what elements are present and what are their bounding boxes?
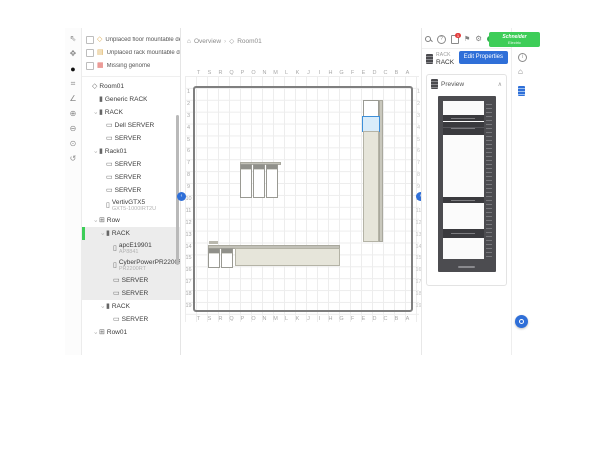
floor-rack[interactable] [221, 248, 233, 268]
filter-row[interactable]: ▦Missing genome [82, 59, 180, 72]
server-icon: ▭ [106, 135, 113, 142]
rack-icon: ▮ [99, 109, 103, 116]
chevron-down-icon[interactable]: › [99, 304, 105, 310]
server-icon: ▭ [113, 290, 120, 297]
tree-item-row[interactable]: ›⊞Row [82, 214, 180, 227]
right-rail: i ⌂ [511, 28, 540, 355]
search-icon[interactable] [425, 36, 432, 43]
device-icon: ▯ [113, 245, 117, 252]
room-icon: ◇ [229, 37, 234, 45]
tree-item-rack[interactable]: ›▮RACK [82, 300, 180, 313]
add-tool-icon[interactable]: ● [70, 65, 75, 73]
app-window: ⇖✥●⌗∠⊕⊖⊙↺ ◇Unplaced floor mountable devi… [65, 28, 540, 355]
floor-rack[interactable] [208, 248, 220, 268]
row-label [209, 241, 218, 244]
panel-divider [422, 48, 511, 49]
filter-label: Unplaced floor mountable devices [105, 37, 180, 43]
server-icon: ▭ [106, 187, 113, 194]
floorplan-canvas[interactable]: ⌂ Overview › ◇ Room01 TSRQPONMLKJIHGFEDC… [181, 28, 421, 355]
device-tree: ◇Room01▮Generic RACK›▮RACK▭Dell SERVER▭S… [82, 80, 180, 339]
selection-type-label: RACK [436, 52, 454, 59]
tree-item-server[interactable]: ▭SERVER [82, 132, 180, 145]
rack-icon [431, 79, 438, 89]
preview-section: Preview ∧ [426, 74, 507, 286]
sidebar: ◇Unplaced floor mountable devices▤Unplac… [82, 28, 181, 355]
rack-base-label [458, 266, 475, 268]
row-icon: ⊞ [99, 329, 105, 336]
server-icon: ▭ [113, 277, 120, 284]
help-icon[interactable]: ? [437, 35, 446, 44]
server-icon: ▭ [113, 316, 120, 323]
tree-item-rack01[interactable]: ›▮Rack01 [82, 145, 180, 158]
zoom-out-tool-icon[interactable]: ⊖ [70, 125, 77, 133]
tree-item-vertivgtx5[interactable]: ▯VertivGTX5GXT5-1000IRT2U [82, 197, 180, 214]
row-body[interactable] [363, 131, 379, 242]
chevron-down-icon[interactable]: › [92, 149, 98, 155]
u-number-rail [486, 101, 492, 259]
properties-panel: RACK RACK Edit Properties Preview ∧ [421, 28, 511, 355]
select-tool-icon[interactable]: ⇖ [70, 35, 77, 43]
rack-tab-icon[interactable] [518, 86, 525, 96]
row-icon: ⊞ [99, 217, 105, 224]
breadcrumb-current: Room01 [237, 38, 262, 45]
selection-name: RACK [436, 59, 454, 66]
tree-item-server[interactable]: ▭SERVER [82, 274, 180, 287]
tree-item-generic-rack[interactable]: ▮Generic RACK [82, 93, 180, 106]
pan-left-handle[interactable]: ‹ [177, 192, 186, 201]
floor-rack-group[interactable] [240, 162, 281, 200]
rack-device [443, 115, 484, 121]
info-icon[interactable]: i [518, 53, 527, 62]
breadcrumb-separator: › [224, 38, 226, 45]
rack-device [443, 197, 484, 203]
breadcrumb-overview[interactable]: Overview [194, 38, 221, 45]
collapse-icon[interactable]: ∧ [498, 81, 502, 88]
checkbox[interactable] [86, 36, 94, 44]
history-tool-icon[interactable]: ↺ [70, 155, 77, 163]
breadcrumb: ⌂ Overview › ◇ Room01 [187, 37, 262, 45]
device-icon: ▯ [106, 202, 110, 209]
rack-icon: ▮ [99, 96, 103, 103]
screen: ⇖✥●⌗∠⊕⊖⊙↺ ◇Unplaced floor mountable devi… [0, 0, 600, 450]
header-icons: ?1⚑⚙ [425, 33, 493, 45]
chevron-down-icon[interactable]: › [92, 330, 98, 336]
filter-list: ◇Unplaced floor mountable devices▤Unplac… [82, 28, 180, 74]
tree-item-row01[interactable]: ›⊞Row01 [82, 326, 180, 339]
selection-header: RACK RACK Edit Properties [426, 50, 508, 68]
server-icon: ▭ [106, 174, 113, 181]
checkbox[interactable] [86, 49, 94, 57]
genome-icon: ▦ [97, 62, 104, 69]
device-icon: ▯ [113, 262, 117, 269]
rack-icon: ▮ [106, 303, 110, 310]
pan-tool-icon[interactable]: ✥ [70, 50, 77, 58]
settings-icon[interactable]: ⚙ [475, 35, 482, 43]
rack-elevation-preview[interactable] [438, 96, 496, 272]
server-icon: ▭ [106, 161, 113, 168]
tree-item-cyberpowerpr2200r-[interactable]: ▯CyberPowerPR2200R...PR2200RT [82, 257, 180, 274]
room-outline[interactable] [193, 86, 413, 312]
flag-icon[interactable]: ⚑ [464, 36, 470, 43]
preview-title: Preview [441, 81, 495, 88]
tree-item-room01[interactable]: ◇Room01 [82, 80, 180, 93]
floor-rack[interactable] [363, 100, 379, 117]
floor-rack[interactable] [253, 164, 265, 198]
room-icon: ◇ [92, 83, 97, 90]
filter-label: Missing genome [107, 63, 151, 69]
home-icon[interactable]: ⌂ [187, 38, 191, 45]
tree-item-server[interactable]: ▭SERVER [82, 171, 180, 184]
filter-row[interactable]: ◇Unplaced floor mountable devices [82, 33, 180, 46]
schneider-electric-logo: Schneider Electric [489, 32, 540, 47]
home-icon[interactable]: ⌂ [518, 68, 523, 76]
filter-label: Unplaced rack mountable devices [107, 50, 180, 56]
chevron-down-icon[interactable]: › [92, 110, 98, 116]
chat-assistant-button[interactable] [515, 315, 528, 328]
tree-item-rack[interactable]: ›▮RACK [82, 106, 180, 119]
chevron-down-icon[interactable]: › [99, 231, 105, 237]
measure-tool-icon[interactable]: ⌗ [71, 80, 76, 88]
floor-rack[interactable] [266, 164, 278, 198]
rack-icon: ▮ [106, 230, 110, 237]
notification-badge: 1 [455, 33, 461, 38]
rack-device-icon: ▤ [97, 49, 104, 56]
tree-item-rack[interactable]: ›▮RACK [82, 227, 180, 240]
ruler-columns-bottom: TSRQPONMLKJIHGFEDCBA [193, 316, 413, 322]
floor-row-vertical[interactable] [363, 100, 383, 242]
sidebar-divider [82, 76, 180, 77]
rack-icon [426, 54, 433, 64]
tree-item-server[interactable]: ▭SERVER [82, 184, 180, 197]
ruler-rows-left: 12345678910111213141516171819 [185, 86, 192, 312]
export-icon[interactable]: 1 [451, 35, 459, 44]
floor-rack-selected[interactable] [362, 116, 380, 132]
zoom-in-tool-icon[interactable]: ⊕ [70, 110, 77, 118]
checkbox[interactable] [86, 62, 94, 70]
ruler-columns-top: TSRQPONMLKJIHGFEDCBA [193, 70, 413, 76]
tree-item-dell-server[interactable]: ▭Dell SERVER [82, 119, 180, 132]
floor-rack[interactable] [240, 164, 252, 198]
tree-item-apce19901[interactable]: ▯apcE19901AP8841 [82, 240, 180, 257]
angle-tool-icon[interactable]: ∠ [69, 95, 76, 103]
tree-item-server[interactable]: ▭SERVER [82, 313, 180, 326]
floor-device-icon: ◇ [97, 36, 102, 43]
rack-device [443, 122, 484, 135]
zoom-fit-tool-icon[interactable]: ⊙ [70, 140, 77, 148]
left-toolbar: ⇖✥●⌗∠⊕⊖⊙↺ [65, 28, 82, 355]
brand-line2: Electric [508, 40, 521, 45]
sidebar-scrollbar[interactable] [176, 115, 179, 265]
chevron-down-icon[interactable]: › [92, 218, 98, 224]
filter-row[interactable]: ▤Unplaced rack mountable devices [82, 46, 180, 59]
row-body[interactable] [235, 248, 340, 266]
floor-row-horizontal[interactable] [208, 245, 340, 269]
tree-item-server[interactable]: ▭SERVER [82, 158, 180, 171]
rack-icon: ▮ [99, 148, 103, 155]
tree-item-server[interactable]: ▭SERVER [82, 287, 180, 300]
rack-device [443, 229, 484, 238]
server-icon: ▭ [106, 122, 113, 129]
edit-properties-button[interactable]: Edit Properties [459, 51, 508, 64]
